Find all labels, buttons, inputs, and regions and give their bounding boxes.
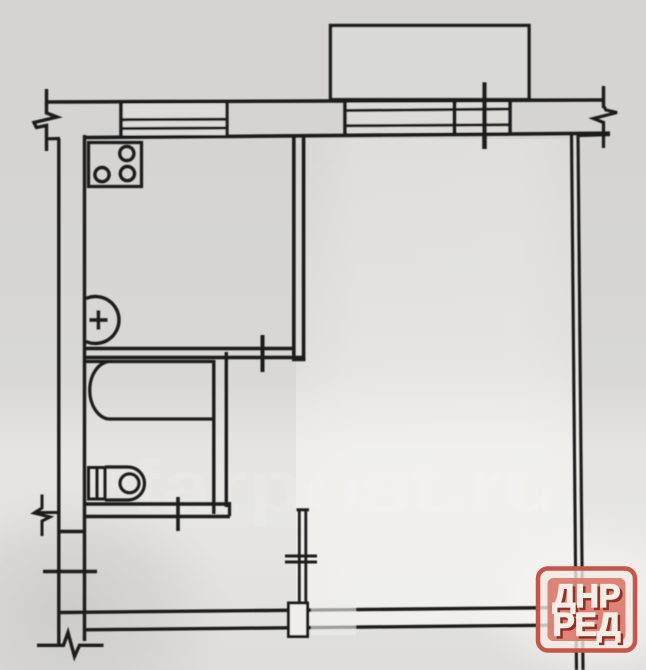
svg-text:РЕД: РЕД [553, 606, 621, 642]
